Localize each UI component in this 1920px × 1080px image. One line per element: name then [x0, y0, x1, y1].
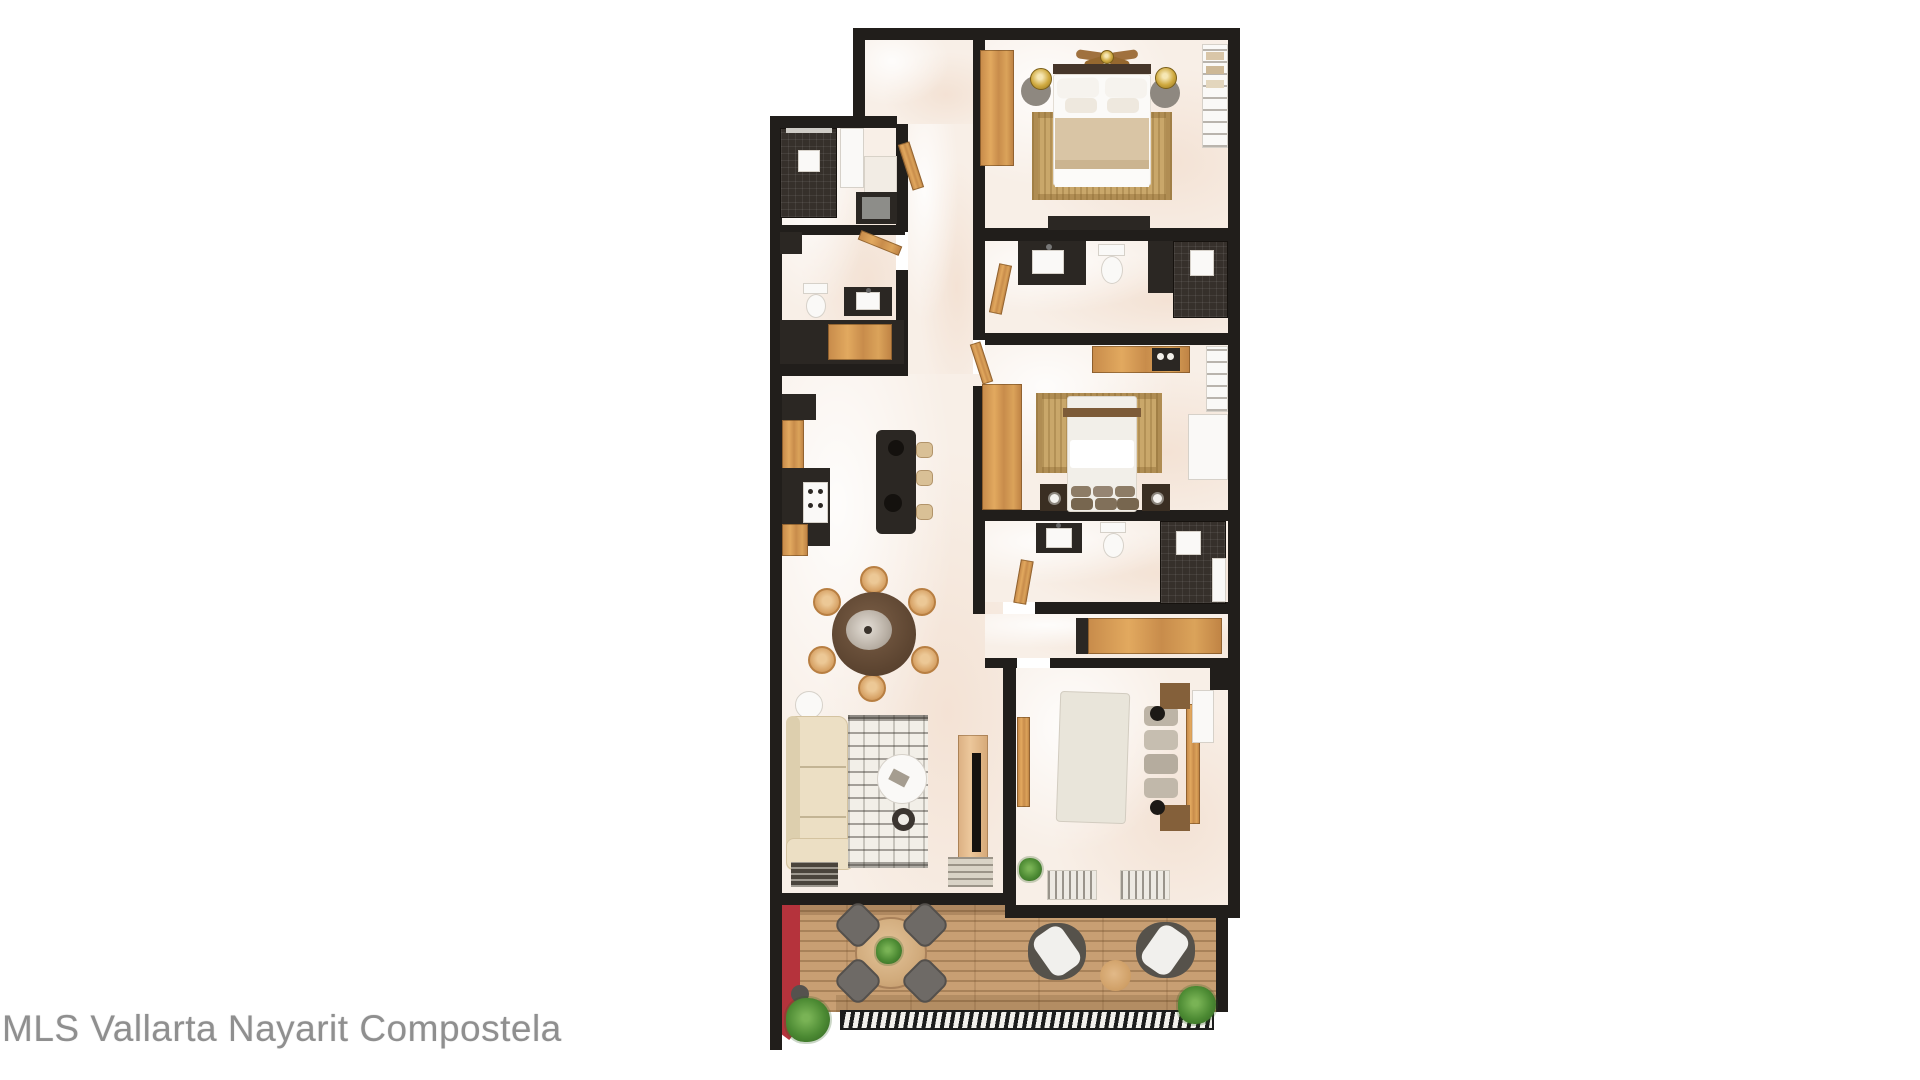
door-mat-1 — [791, 862, 838, 887]
island-tap — [884, 494, 902, 512]
wall-terrace-right — [1216, 905, 1228, 1012]
sink-3 — [1046, 528, 1072, 548]
toilet-3-bowl — [1103, 533, 1124, 558]
watermark: MLS Vallarta Nayarit Compostela — [2, 1008, 562, 1050]
shower-1-head — [798, 150, 820, 172]
master-pillow-2 — [1105, 77, 1148, 98]
corridor-floor — [908, 124, 973, 376]
wall-notch-bedroom3 — [1210, 668, 1228, 690]
kitchen-cabinet-b — [782, 524, 808, 556]
hall-bench — [1088, 618, 1222, 654]
terrace-plant-left — [786, 998, 830, 1042]
wall-living-right — [1003, 658, 1016, 905]
closet-clothes-1 — [1206, 52, 1224, 60]
bedroom2-wardrobe — [982, 384, 1022, 510]
bed-2-pillow-1 — [1071, 486, 1091, 497]
wall-bottom-bedroom3 — [1005, 905, 1240, 918]
laundry-closet — [840, 128, 864, 188]
lounge-side-table — [1100, 960, 1131, 991]
coffee-tray-cup-1 — [1157, 353, 1164, 360]
bar-stool-2 — [916, 470, 933, 486]
sofa-seam-1 — [800, 766, 846, 768]
wall-corridor-left — [853, 28, 865, 124]
lamp-2a — [1048, 492, 1061, 505]
bed-2-pillow-5 — [1095, 498, 1117, 510]
lamp-3a — [1150, 706, 1165, 721]
master-bench — [1048, 216, 1150, 230]
living-stool-top — [898, 814, 909, 825]
master-pillow-1 — [1057, 77, 1100, 98]
terrace-railing — [840, 1010, 1214, 1030]
toilet-2-tank — [1098, 244, 1125, 256]
wing-shelf — [780, 232, 802, 254]
entry-floor — [865, 40, 973, 124]
closet-clothes-2 — [1206, 66, 1224, 74]
bar-stool-1 — [916, 442, 933, 458]
door-mat-2 — [948, 857, 993, 887]
dining-chair-n — [860, 566, 888, 594]
bed-2-sheet — [1070, 440, 1134, 468]
toilet-3-tank — [1100, 522, 1126, 533]
wall-hall-b — [1050, 658, 1240, 668]
lamp-3b — [1150, 800, 1165, 815]
wing-closet-wood — [828, 324, 892, 360]
bath3-bench — [1212, 558, 1226, 602]
master-pillow-4 — [1107, 98, 1139, 113]
apartment-floor-plan — [0, 0, 1920, 1080]
bed-2-pillow-3 — [1115, 486, 1135, 497]
bed-2-pillow-6 — [1117, 498, 1139, 510]
master-bed-headboard — [1053, 64, 1151, 74]
dining-chair-se — [911, 646, 939, 674]
wall-wing-top — [770, 116, 897, 128]
stove-burner-4 — [818, 503, 823, 508]
floor-plan-render: MLS Vallarta Nayarit Compostela — [0, 0, 1920, 1080]
bedroom3-wardrobe — [1192, 690, 1214, 743]
bar-stool-3 — [916, 504, 933, 520]
bedroom3-door — [1017, 717, 1030, 807]
sofa-seam-2 — [800, 816, 846, 818]
washer-screen — [862, 197, 890, 219]
toilet-2-bowl — [1101, 256, 1123, 284]
master-blanket-fold — [1055, 160, 1149, 169]
shower-3-shelf — [1176, 531, 1201, 555]
wing-counter — [864, 156, 897, 194]
master-wardrobe — [980, 50, 1014, 166]
side-table — [795, 691, 823, 719]
hall-bench-end — [1076, 618, 1088, 654]
master-lamp-b — [1155, 67, 1177, 89]
bed-2-frame — [1063, 408, 1141, 417]
ceiling-fan-hub — [1100, 50, 1114, 64]
dining-chair-sw — [808, 646, 836, 674]
wall-wing-right-a — [896, 124, 908, 232]
sink-2 — [1032, 250, 1064, 274]
toilet-1-tank — [803, 283, 828, 294]
lamp-2b — [1151, 492, 1164, 505]
shower-2-shelf — [1190, 250, 1214, 276]
curtain-pile-2 — [1120, 870, 1170, 900]
wall-bath-bedroom2 — [985, 333, 1240, 345]
coffee-tray — [1152, 348, 1180, 371]
sink-1-faucet — [866, 288, 871, 293]
kitchen-cabinet-a — [782, 420, 804, 470]
nightstand-3a — [1160, 683, 1190, 709]
stove-burner-3 — [808, 503, 813, 508]
wall-wing-kitchen — [770, 364, 908, 376]
master-bed-foot — [1055, 169, 1149, 187]
bath2-partition — [1148, 241, 1173, 293]
dining-centerpiece-dot — [864, 626, 872, 634]
tv — [972, 753, 981, 852]
sink-3-faucet — [1056, 523, 1061, 528]
closet-2-shelves — [1206, 346, 1228, 412]
kitchen-counter-top — [782, 394, 816, 420]
closet-clothes-3 — [1206, 80, 1224, 88]
sink-1 — [856, 292, 880, 310]
stove-burner-1 — [808, 489, 813, 494]
bed-2-pillow-2 — [1093, 486, 1113, 497]
curtain-pile-1 — [1047, 870, 1097, 900]
master-lamp-a — [1030, 68, 1052, 90]
bed-2-pillow-4 — [1071, 498, 1093, 510]
closet-2-box — [1188, 414, 1228, 480]
dining-chair-ne — [908, 588, 936, 616]
bed-3-pillow-3 — [1144, 754, 1178, 774]
stove-burner-2 — [818, 489, 823, 494]
wall-right — [1228, 28, 1240, 918]
shower-1-bar — [786, 128, 832, 133]
bed-3-pillow-2 — [1144, 730, 1178, 750]
wall-bottom-living — [770, 893, 1016, 905]
toilet-1-bowl — [806, 294, 826, 318]
coffee-tray-cup-2 — [1167, 353, 1174, 360]
wall-top — [853, 28, 1240, 40]
master-pillow-3 — [1065, 98, 1097, 113]
island-sink — [888, 440, 904, 456]
sink-2-faucet — [1046, 244, 1052, 250]
bed-3 — [1056, 691, 1131, 824]
bed-3-pillow-4 — [1144, 778, 1178, 798]
dining-chair-s — [858, 674, 886, 702]
wall-terrace-left — [770, 905, 782, 1050]
stove — [803, 482, 828, 523]
shower-1 — [780, 128, 837, 218]
